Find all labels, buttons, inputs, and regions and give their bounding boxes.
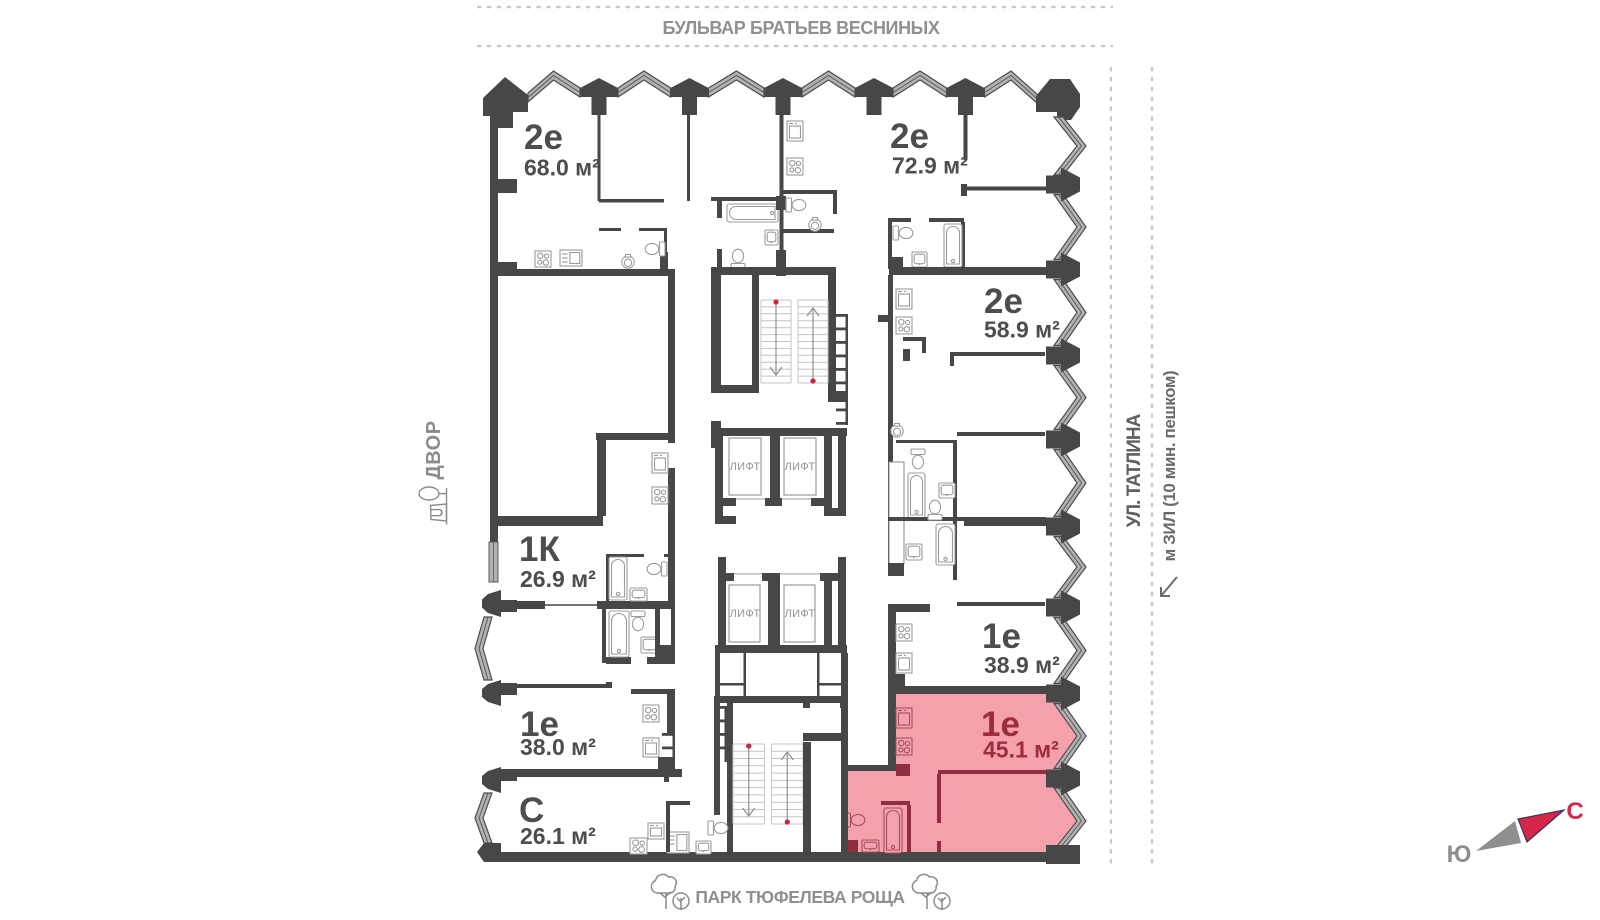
svg-text:БУЛЬВАР БРАТЬЕВ ВЕСНИНЫХ: БУЛЬВАР БРАТЬЕВ ВЕСНИНЫХ bbox=[662, 18, 939, 38]
svg-text:1К: 1К bbox=[519, 530, 560, 569]
svg-text:38.9 м²: 38.9 м² bbox=[984, 652, 1060, 678]
svg-text:72.9 м²: 72.9 м² bbox=[892, 153, 968, 179]
svg-text:ЛИФТ: ЛИФТ bbox=[785, 608, 816, 620]
svg-text:ПАРК ТЮФЕЛЕВА РОЩА: ПАРК ТЮФЕЛЕВА РОЩА bbox=[695, 887, 905, 907]
svg-text:68.0 м²: 68.0 м² bbox=[524, 155, 600, 181]
svg-text:26.1 м²: 26.1 м² bbox=[520, 823, 596, 849]
svg-text:ЛИФТ: ЛИФТ bbox=[785, 461, 816, 473]
svg-text:45.1 м²: 45.1 м² bbox=[983, 737, 1059, 763]
svg-text:1е: 1е bbox=[982, 617, 1021, 656]
svg-text:ЛИФТ: ЛИФТ bbox=[730, 461, 761, 473]
svg-text:Ю: Ю bbox=[1447, 841, 1472, 868]
svg-text:2е: 2е bbox=[890, 117, 929, 156]
svg-text:58.9 м²: 58.9 м² bbox=[984, 317, 1060, 343]
svg-text:2е: 2е bbox=[984, 282, 1023, 321]
svg-text:С: С bbox=[1566, 798, 1583, 825]
svg-text:УЛ. ТАТЛИНА: УЛ. ТАТЛИНА bbox=[1124, 413, 1145, 527]
svg-text:2е: 2е bbox=[524, 118, 563, 157]
svg-text:38.0 м²: 38.0 м² bbox=[520, 734, 596, 760]
svg-text:ЛИФТ: ЛИФТ bbox=[730, 608, 761, 620]
svg-text:ДВОР: ДВОР bbox=[423, 420, 445, 479]
svg-text:26.9 м²: 26.9 м² bbox=[520, 566, 596, 592]
svg-text:м ЗИЛ (10 мин. пешком): м ЗИЛ (10 мин. пешком) bbox=[1160, 371, 1179, 562]
